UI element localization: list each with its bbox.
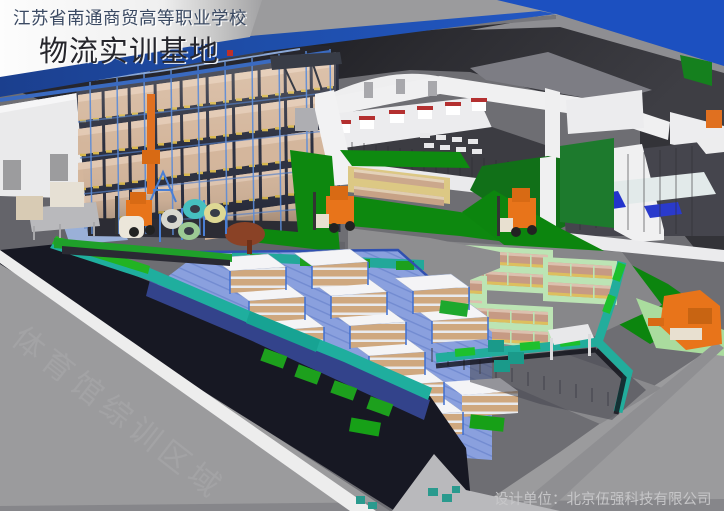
svg-text:物流实训基地: 物流实训基地: [39, 35, 219, 68]
svg-text:江苏省南通商贸高等职业学校: 江苏省南通商贸高等职业学校: [13, 8, 247, 28]
svg-text:设计单位：北京伍强科技有限公司: 设计单位：北京伍强科技有限公司: [494, 491, 712, 508]
